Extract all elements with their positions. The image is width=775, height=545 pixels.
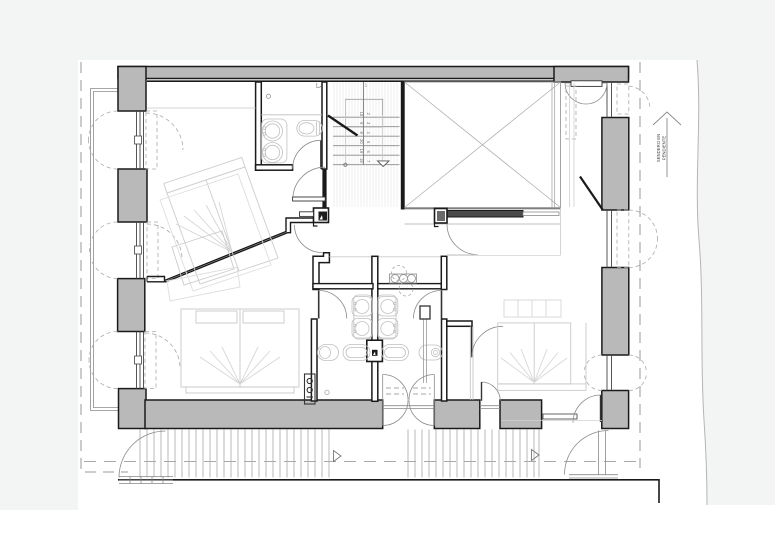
svg-text:19: 19 [359, 149, 364, 154]
svg-text:18: 18 [359, 158, 364, 163]
svg-text:10: 10 [359, 112, 364, 117]
svg-text:SENDERO EN: SENDERO EN [656, 134, 661, 162]
svg-text:PENDIENTE: PENDIENTE [662, 136, 667, 161]
svg-text:20: 20 [359, 139, 364, 144]
